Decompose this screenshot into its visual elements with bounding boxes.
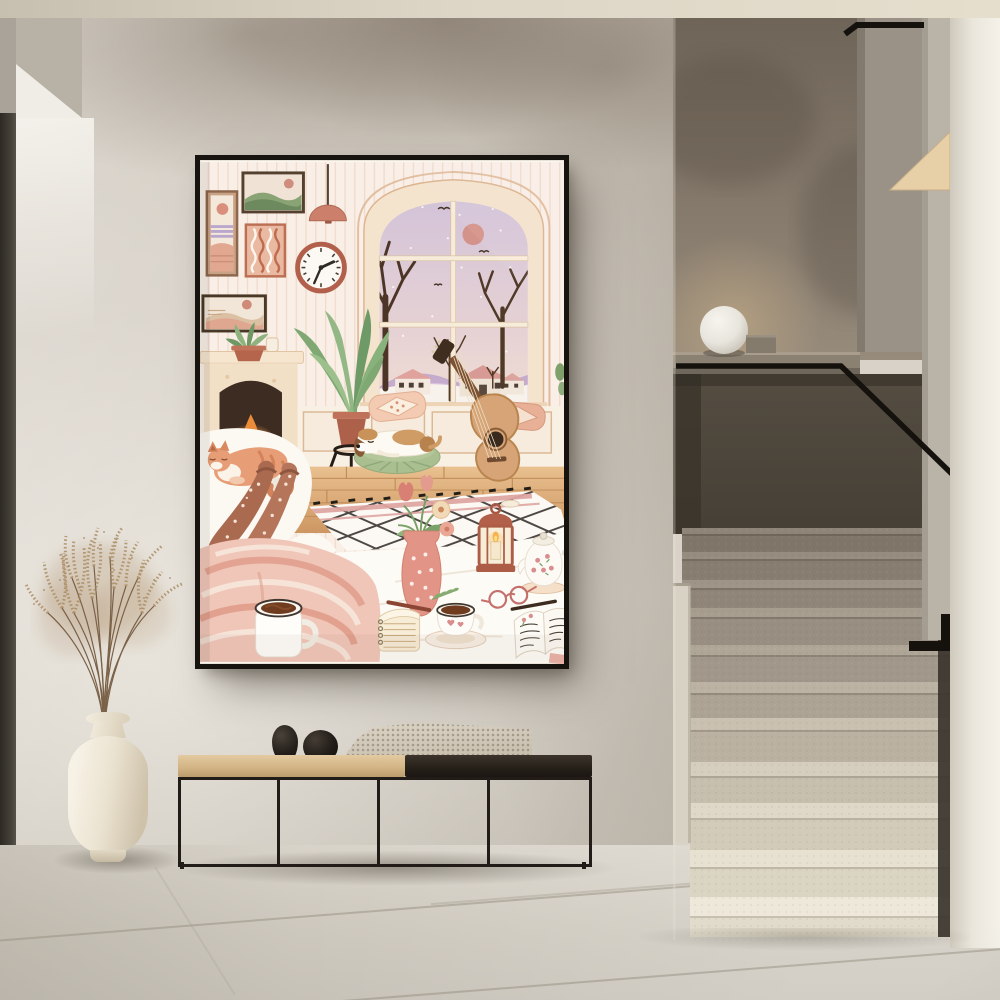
framed-art-print [195, 155, 569, 669]
picture-small-landscape [203, 296, 265, 331]
bench-seat-wood [178, 755, 405, 777]
picture-green-landscape [243, 173, 304, 212]
stair-floor-shadow [640, 928, 970, 950]
stair-parapet-panel [673, 374, 922, 534]
staircase-steps [673, 520, 960, 940]
bench-frame-divider [487, 780, 490, 864]
bench-metal-frame [178, 777, 592, 867]
picture-wavy-pattern [246, 225, 285, 277]
hallway-scene [0, 0, 1000, 1000]
pampas-grass [14, 518, 194, 728]
door-frame-edge [0, 113, 16, 847]
ledge-object [746, 335, 776, 353]
vase-foot [90, 850, 126, 862]
window-pillow-left [368, 390, 427, 422]
globe-lamp [700, 306, 748, 354]
vase-body [68, 736, 148, 854]
stair-side-wall [673, 585, 690, 843]
bench-frame-divider [277, 780, 280, 864]
bench-foot [582, 862, 586, 869]
bench-foot [180, 862, 184, 869]
wall-highlight [14, 118, 94, 338]
ceiling-beam [0, 0, 1000, 19]
bench-frame-divider [377, 780, 380, 864]
poster-artwork [200, 160, 564, 664]
picture-tall-abstract [207, 191, 237, 275]
door-header [0, 18, 16, 113]
window-mullion [451, 201, 456, 402]
right-wall [950, 18, 1000, 948]
small-dish [502, 500, 520, 507]
bench-seat-dark [405, 755, 592, 777]
mantel-jar [266, 338, 278, 352]
sleeping-dog [354, 429, 440, 474]
floor-vase [62, 712, 154, 864]
wall-clock [298, 244, 345, 291]
entry-bench [178, 723, 592, 869]
